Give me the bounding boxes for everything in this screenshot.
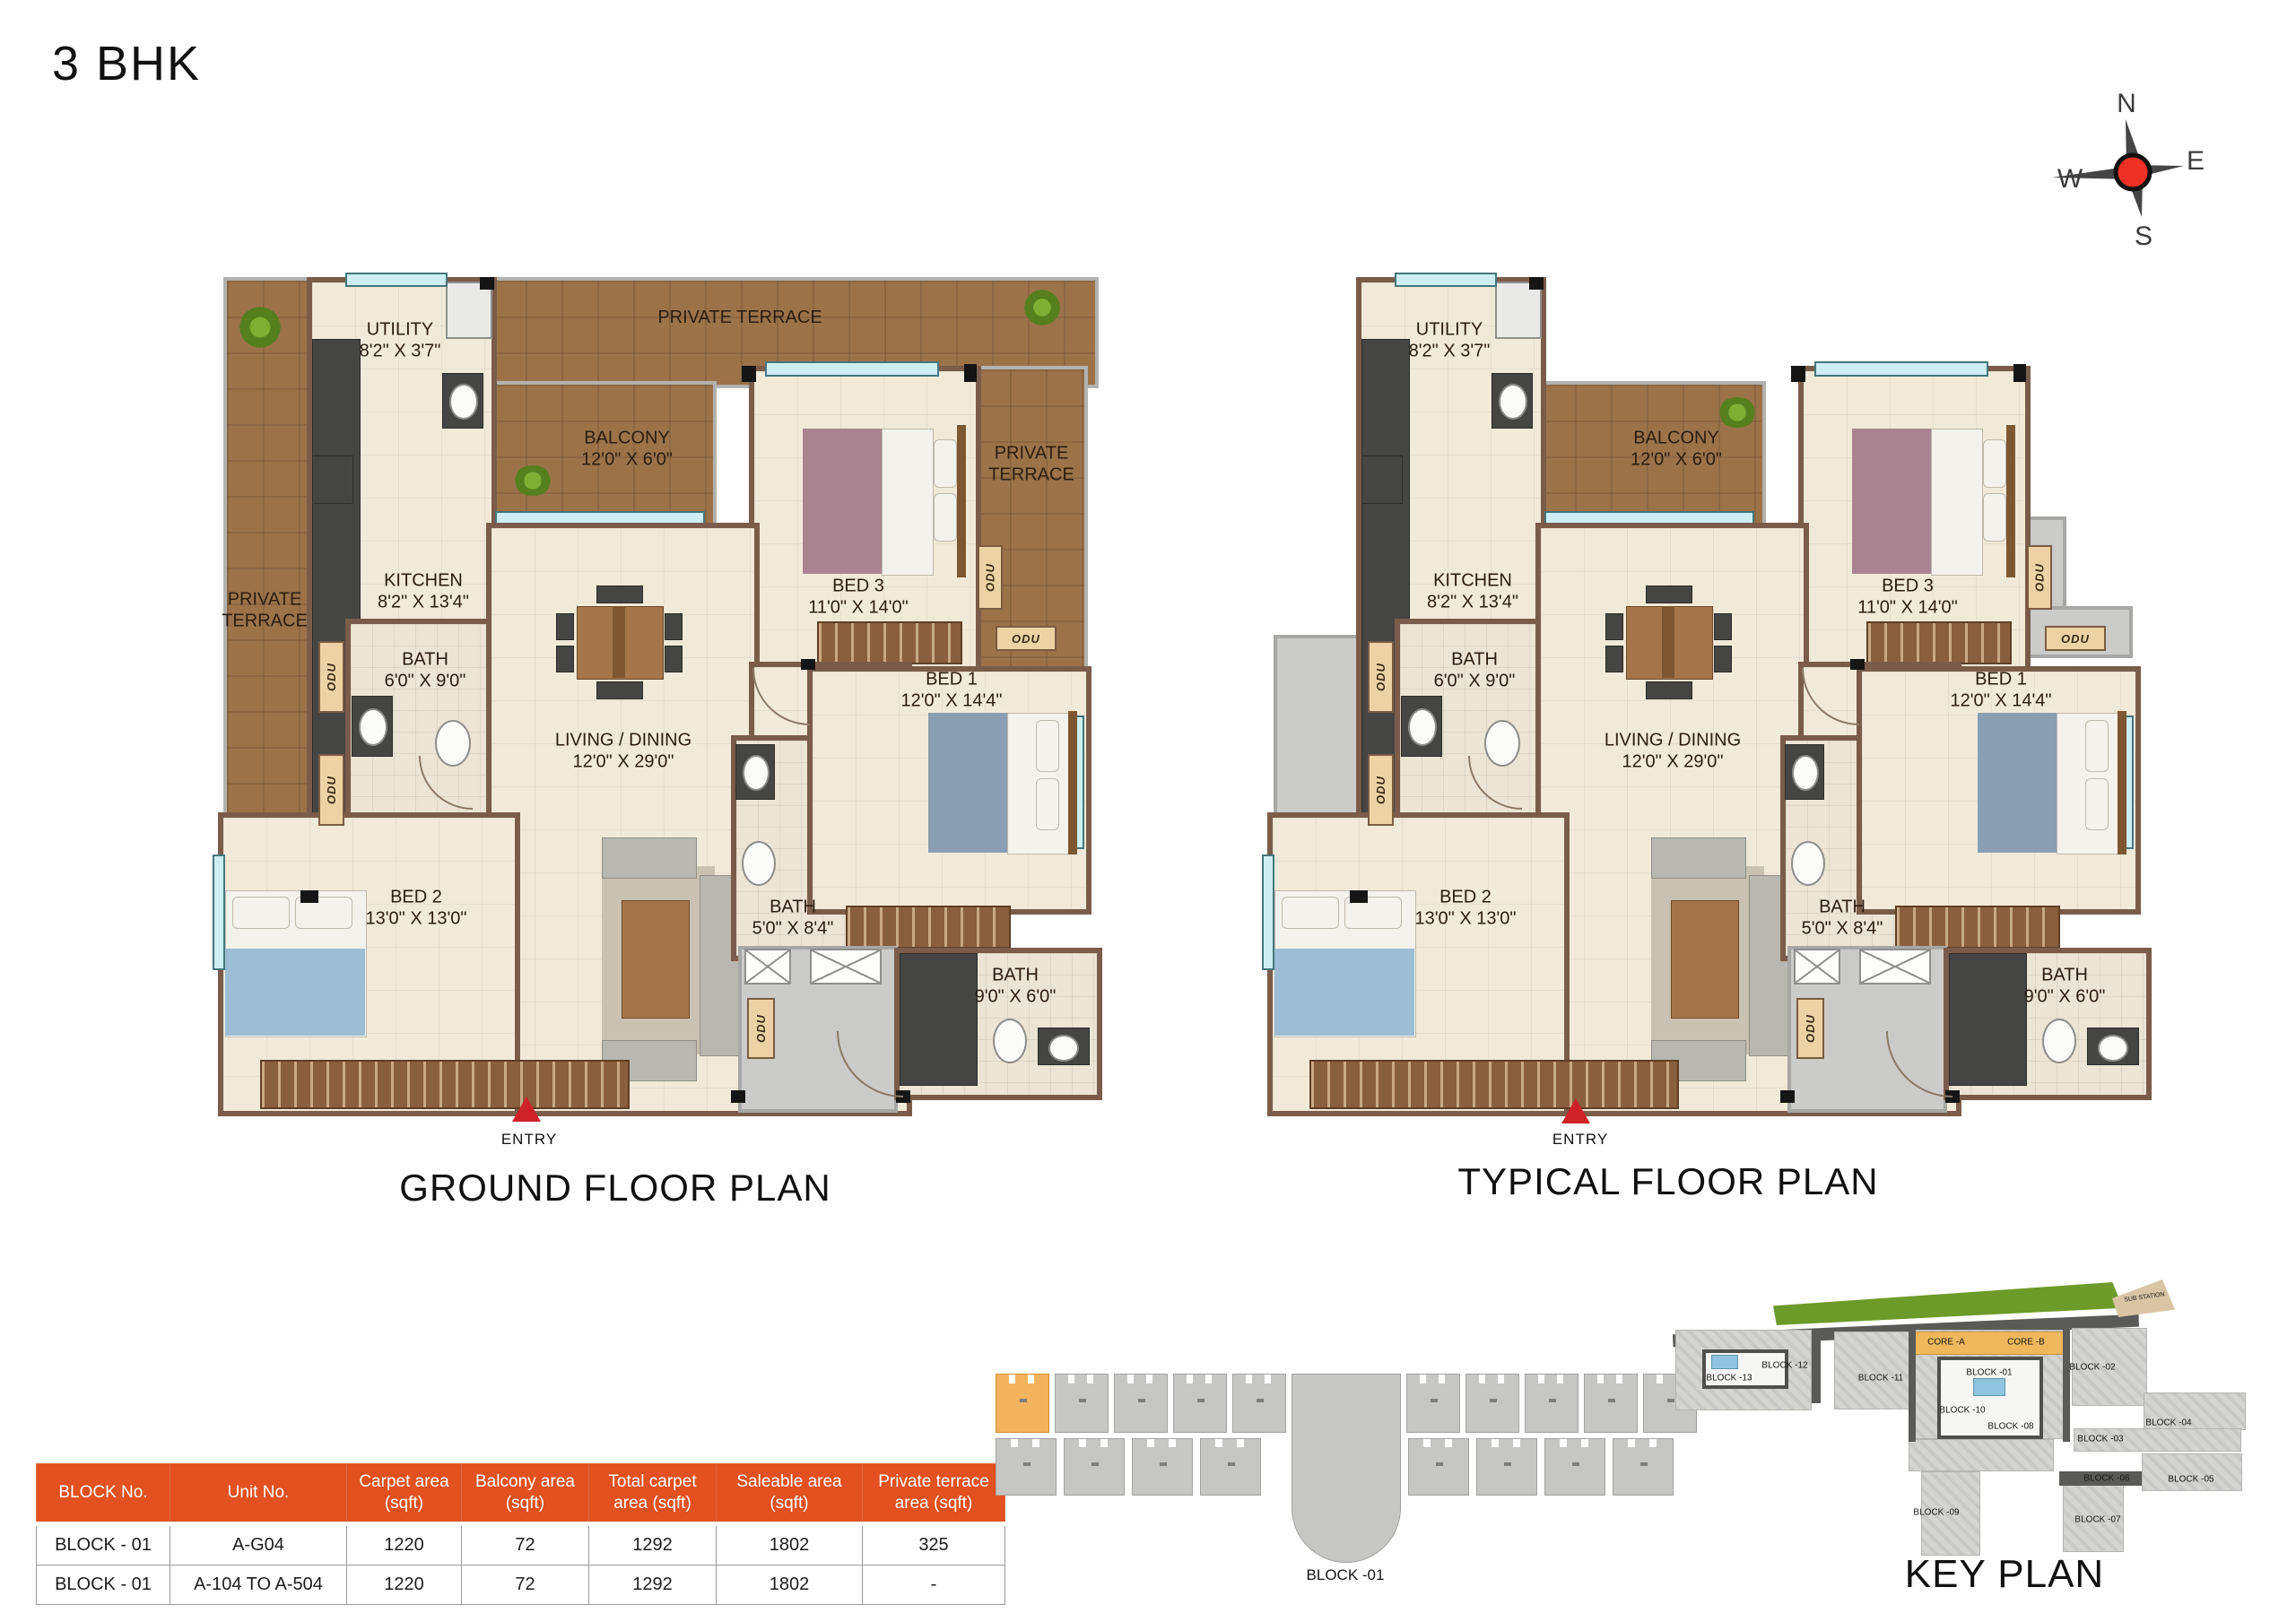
key-block-label: BLOCK -05 (2168, 1475, 2213, 1485)
highlighted-unit (996, 1374, 1049, 1433)
sofa (1651, 837, 1746, 879)
pillow (1282, 897, 1339, 929)
sink-basin (1408, 708, 1437, 746)
wall (480, 277, 494, 290)
sink-basin (1792, 755, 1819, 791)
chair (1605, 613, 1623, 640)
col-header: Unit No. (170, 1464, 347, 1524)
odu-box: ODU (318, 754, 344, 826)
road (2063, 1330, 2070, 1442)
shaft (1859, 949, 1931, 984)
pillow (1983, 439, 2006, 488)
bed1-bed (1978, 713, 2057, 853)
unit (1173, 1374, 1227, 1433)
toilet (2042, 1019, 2076, 1063)
bed1-label: BED 112'0" X 14'4" (1950, 669, 2051, 711)
key-plan-title: KEY PLAN (1905, 1552, 2104, 1597)
unit (1465, 1374, 1519, 1433)
headboard (2118, 711, 2126, 854)
cell: A-104 TO A-504 (170, 1566, 347, 1605)
bed3-bed (1852, 429, 1931, 574)
pillow (2085, 720, 2109, 772)
plant-icon (1024, 290, 1060, 325)
private-terrace-label: PRIVATE TERRACE (657, 308, 822, 329)
window (1814, 361, 1988, 377)
odu-box: ODU (996, 626, 1057, 651)
utility-label: UTILITY8'2" X 3'7" (360, 319, 441, 361)
plant-icon (513, 465, 552, 496)
key-block-label: BLOCK -04 (2145, 1418, 2191, 1428)
shaft (744, 949, 791, 984)
key-block-label: BLOCK -02 (2069, 1363, 2115, 1373)
block-diagram: BLOCK -01 (996, 1374, 1704, 1587)
compass-north-label: N (2117, 89, 2136, 119)
headboard (957, 425, 966, 577)
wall (1780, 1090, 1795, 1103)
key-core-label: CORE -A (1927, 1338, 1965, 1348)
toilet (1791, 841, 1825, 886)
col-header: Carpet area (sqft) (347, 1464, 462, 1524)
col-header: Saleable area (sqft) (717, 1464, 863, 1524)
stove (312, 455, 353, 504)
wall (731, 1090, 745, 1103)
bed1-label: BED 112'0" X 14'4" (900, 669, 1002, 711)
window (1395, 273, 1497, 287)
odu-box: ODU (1796, 998, 1824, 1059)
wardrobe (1866, 621, 2012, 664)
bed3-bed (803, 429, 882, 574)
unit (1114, 1374, 1168, 1433)
pillow (1983, 493, 2006, 542)
cell: 1292 (589, 1524, 717, 1566)
cell: 1802 (717, 1524, 863, 1566)
stove (1361, 455, 1403, 504)
col-header: Balcony area (sqft) (462, 1464, 589, 1524)
key-block-label: BLOCK -13 (1706, 1374, 1752, 1383)
bed3-label: BED 311'0" X 14'0" (808, 576, 909, 618)
unit (1200, 1438, 1261, 1496)
kitchen-label: KITCHEN8'2" X 13'4" (1427, 570, 1518, 612)
table-row: BLOCK - 01 A-104 TO A-504 1220 72 1292 1… (37, 1566, 1005, 1605)
wardrobe (1309, 1060, 1679, 1109)
bed1-bed (928, 713, 1007, 853)
unit (1408, 1438, 1469, 1496)
cell: 72 (462, 1524, 589, 1566)
balcony-label: BALCONY12'0" X 6'0" (1631, 428, 1722, 470)
wardrobe (817, 621, 962, 664)
cell: - (863, 1566, 1005, 1605)
headboard (1068, 711, 1077, 854)
pillow (1036, 778, 1059, 830)
wall (1350, 890, 1368, 903)
wall (1529, 277, 1544, 290)
chair (1646, 681, 1692, 699)
private-terrace-label: PRIVATETERRACE (222, 589, 308, 631)
ground-floor-plan: ODU ODU ODU ODU ODU UTILITY8'2" X 3'7" K… (211, 267, 1094, 1110)
odu-box: ODU (1368, 641, 1394, 713)
wardrobe (1895, 906, 2060, 949)
shaft (810, 949, 882, 984)
unit (1613, 1438, 1674, 1496)
unit (1055, 1374, 1109, 1433)
odu-box: ODU (2027, 545, 2052, 610)
window (345, 273, 448, 287)
headboard (2006, 425, 2015, 577)
wall (2013, 364, 2026, 382)
wardrobe (260, 1060, 630, 1109)
toilet (993, 1019, 1027, 1063)
cell: 1802 (717, 1566, 863, 1605)
compass-west-label: W (2057, 164, 2083, 195)
bath-bed1-label: BATH5'0" X 8'4" (752, 897, 834, 939)
window (765, 361, 939, 377)
pillow (934, 493, 957, 542)
chair (596, 585, 643, 603)
living-dining-label: LIVING / DINING12'0" X 29'0" (1605, 730, 1741, 772)
unit (1406, 1374, 1460, 1433)
pool (1973, 1378, 2005, 1396)
chair (1714, 646, 1732, 672)
cell: 72 (462, 1566, 589, 1605)
road (1909, 1330, 1916, 1442)
ground-plan-title: GROUND FLOOR PLAN (399, 1167, 831, 1210)
key-block-label: BLOCK -03 (2077, 1435, 2123, 1444)
unit (1544, 1438, 1605, 1496)
table-runner (1662, 606, 1674, 678)
unit (1132, 1438, 1193, 1496)
cell: 1220 (347, 1524, 462, 1566)
chair (665, 646, 683, 672)
pillow (1036, 720, 1059, 772)
compass-east-label: E (2187, 146, 2205, 177)
unit (1232, 1374, 1286, 1433)
cell: BLOCK - 01 (37, 1524, 170, 1566)
key-block-label: BLOCK -06 (2083, 1474, 2129, 1484)
bed3-bed (1931, 429, 1983, 576)
bed3-bed (882, 429, 934, 576)
bath-bed3-label: BATH9'0" X 6'0" (975, 965, 1057, 1007)
unit (1584, 1374, 1638, 1433)
sink-basin (1048, 1035, 1079, 1062)
sink-basin (359, 708, 387, 746)
cell: A-G04 (170, 1524, 347, 1566)
wall (300, 890, 318, 903)
wardrobe (846, 906, 1011, 949)
cell: BLOCK - 01 (37, 1566, 170, 1605)
bath-common-label: BATH6'0" X 9'0" (1434, 649, 1516, 691)
entry-label: ENTRY (1552, 1131, 1608, 1149)
key-core-label: CORE -B (2007, 1338, 2045, 1348)
typical-floor-plan: ODU ODU ODU ODU ODU UTILITY8'2" X 3'7" K… (1260, 267, 2144, 1110)
chair (556, 646, 574, 672)
washing-machine (1495, 282, 1542, 339)
sink-basin (1499, 384, 1527, 420)
living-dining-label: LIVING / DINING12'0" X 29'0" (555, 730, 691, 772)
chair (1605, 646, 1623, 672)
odu-box: ODU (318, 641, 344, 713)
key-plan: BLOCK -13 BLOCK -12 BLOCK -11 CORE -A CO… (1668, 1278, 2296, 1587)
road (1812, 1331, 1821, 1403)
page: 3 BHK N E W S (0, 0, 2296, 1622)
key-block-label: BLOCK -12 (1761, 1361, 1807, 1371)
key-block-label: BLOCK -11 (1858, 1374, 1903, 1383)
pillow (232, 897, 290, 929)
pool (1711, 1355, 1738, 1369)
wall (964, 364, 977, 382)
key-block-label: BLOCK -07 (2074, 1515, 2120, 1525)
core-stem-round (1291, 1506, 1401, 1563)
wall (1791, 366, 1805, 382)
chair (665, 613, 683, 640)
typical-plan-title: TYPICAL FLOOR PLAN (1457, 1160, 1878, 1203)
sink-basin (743, 755, 770, 791)
col-header: Total carpet area (sqft) (589, 1464, 717, 1524)
block-diagram-label: BLOCK -01 (1307, 1566, 1385, 1584)
plant-icon (1718, 397, 1757, 428)
utility-label: UTILITY8'2" X 3'7" (1409, 319, 1491, 361)
cell: 325 (863, 1524, 1005, 1566)
unit (1525, 1374, 1578, 1433)
area-table: BLOCK No. Unit No. Carpet area (sqft) Ba… (36, 1463, 1005, 1605)
sofa (602, 837, 697, 879)
table-header-row: BLOCK No. Unit No. Carpet area (sqft) Ba… (37, 1464, 1005, 1524)
toilet (742, 841, 776, 886)
sink-basin (2098, 1035, 2128, 1062)
cell: 1292 (589, 1566, 717, 1605)
chair (1714, 613, 1732, 640)
washing-machine (446, 282, 492, 339)
chair (596, 681, 643, 699)
pillow (2085, 778, 2109, 830)
bath-bed3-label: BATH9'0" X 6'0" (2024, 965, 2106, 1007)
col-header: BLOCK No. (37, 1464, 170, 1524)
key-block-label: BLOCK -10 (1939, 1406, 1985, 1416)
kitchen-label: KITCHEN8'2" X 13'4" (378, 570, 469, 612)
bed2-blanket (225, 949, 365, 1036)
odu-box: ODU (1368, 754, 1394, 826)
chair (556, 613, 574, 640)
bath-common-label: BATH6'0" X 9'0" (385, 649, 466, 691)
chair (1646, 585, 1692, 603)
wall (742, 366, 756, 382)
entry-label: ENTRY (501, 1131, 557, 1149)
plant-icon (239, 307, 281, 348)
block-shape (1834, 1331, 1912, 1409)
sink-basin (449, 384, 478, 420)
odu-box: ODU (747, 998, 775, 1059)
key-block-label: BLOCK -09 (1913, 1508, 1959, 1518)
unit (996, 1438, 1057, 1496)
block-shape (1909, 1439, 2054, 1471)
coffee-table (622, 900, 690, 1019)
unit (1064, 1438, 1125, 1496)
table-runner (613, 606, 625, 678)
shower (1949, 953, 2027, 1086)
table-row: BLOCK - 01 A-G04 1220 72 1292 1802 325 (37, 1524, 1005, 1566)
bed2-label: BED 213'0" X 13'0" (1414, 887, 1516, 929)
odu-box: ODU (978, 545, 1003, 610)
coffee-table (1671, 900, 1739, 1019)
key-block-label: BLOCK -01 (1966, 1368, 2012, 1378)
shaft (1794, 949, 1840, 984)
entry-marker-icon (1561, 1098, 1590, 1123)
unit (1476, 1438, 1537, 1496)
odu-box: ODU (2045, 626, 2106, 651)
key-block-label: BLOCK -08 (1987, 1422, 2033, 1432)
pillow (934, 439, 957, 488)
shower (900, 953, 978, 1086)
bed3-label: BED 311'0" X 14'0" (1857, 576, 1958, 618)
balcony-label: BALCONY12'0" X 6'0" (581, 428, 673, 470)
col-header: Private terrace area (sqft) (863, 1464, 1005, 1524)
core-stem (1291, 1374, 1401, 1510)
block-shape (2142, 1453, 2242, 1491)
page-title: 3 BHK (52, 36, 201, 91)
bed2-label: BED 213'0" X 13'0" (365, 887, 466, 929)
bath-bed1-label: BATH5'0" X 8'4" (1802, 897, 1883, 939)
cell: 1220 (347, 1566, 462, 1605)
entry-marker-icon (512, 1097, 541, 1122)
window (1262, 854, 1274, 970)
bed2-blanket (1274, 949, 1414, 1036)
window (213, 854, 225, 970)
private-terrace-label: PRIVATETERRACE (988, 443, 1074, 485)
compass-south-label: S (2135, 221, 2152, 252)
